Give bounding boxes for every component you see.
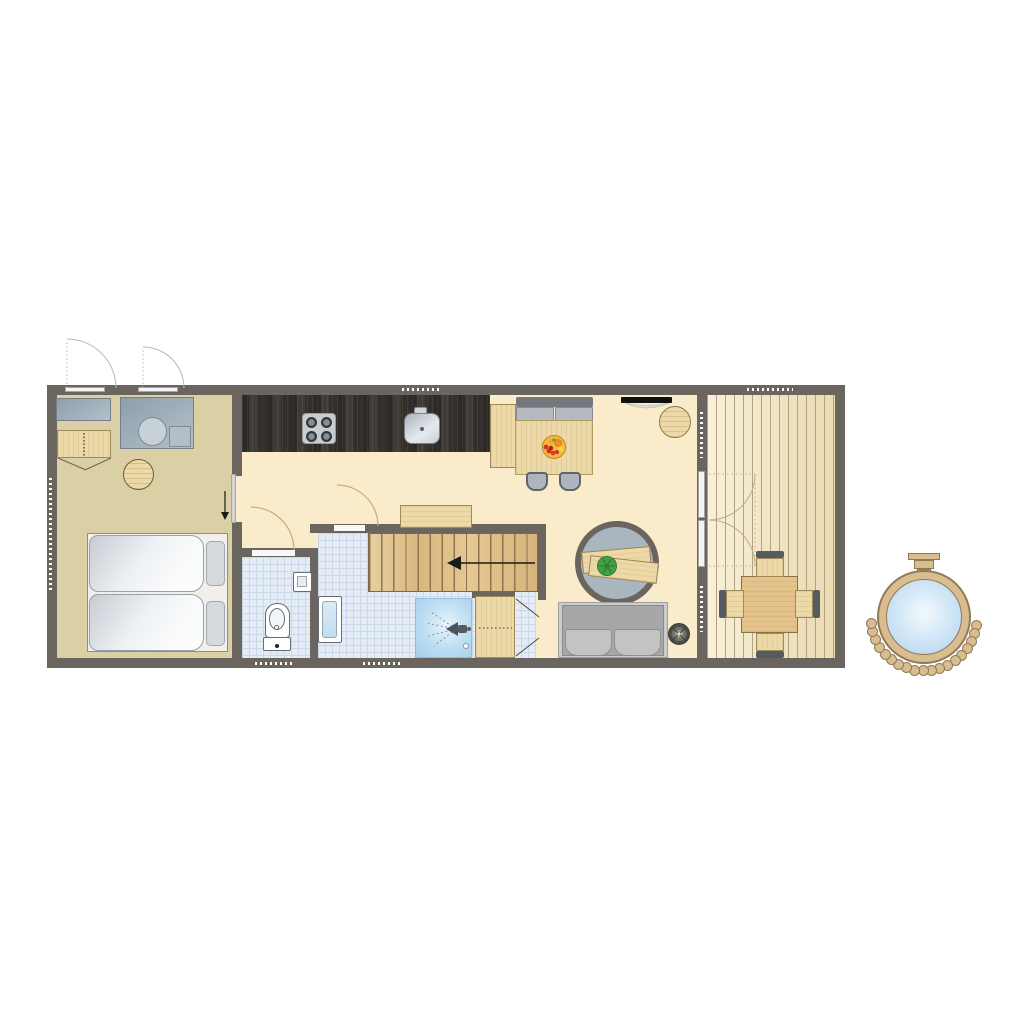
- toilet-cistern: [263, 637, 291, 651]
- hot-tub-water: [886, 579, 962, 655]
- hot-tub-stone: [971, 620, 982, 631]
- hot-tub-stone: [969, 628, 980, 639]
- hot-tub-stone: [909, 665, 920, 676]
- pouf: [123, 459, 154, 490]
- hot-tub-stone: [874, 642, 885, 653]
- dining-table: [515, 420, 593, 475]
- tv-icon: [621, 397, 672, 403]
- vent-grille: [402, 388, 442, 391]
- hob-burner: [321, 431, 332, 442]
- wall-bedroom-hall: [232, 395, 242, 658]
- vent-grille: [255, 662, 294, 665]
- hot-tub-stone: [966, 636, 977, 647]
- wall-bottom: [47, 658, 845, 668]
- wall-toilet-bath-divider: [310, 548, 318, 658]
- wall-right: [835, 385, 845, 668]
- garden-chair-seat: [726, 590, 744, 618]
- hot-tub-stone: [901, 662, 912, 673]
- hot-tub-stone: [926, 665, 937, 676]
- wardrobe: [57, 430, 111, 458]
- washbasin-bowl: [322, 601, 337, 638]
- bathroom-washbasin: [318, 596, 342, 643]
- staircase: [368, 533, 538, 592]
- bedroom-window-2: [138, 387, 178, 392]
- terrace-door-glass-2: [698, 520, 705, 567]
- hot-tub-stone: [934, 663, 945, 674]
- hot-tub-stone: [867, 626, 878, 637]
- cistern-button: [275, 644, 279, 648]
- vent-grille: [700, 412, 703, 458]
- sink-drain: [420, 427, 424, 431]
- bed-mattress-2: [89, 594, 204, 651]
- bed-pillow-2: [206, 601, 225, 646]
- garden-chair-seat: [756, 558, 784, 577]
- hand-basin-bowl: [297, 576, 307, 587]
- window-swing-arcs: [67, 339, 184, 388]
- hob-burner: [306, 417, 317, 428]
- hot-tub-stone: [942, 660, 953, 671]
- side-table: [659, 406, 691, 438]
- garden-chair-back: [719, 590, 726, 618]
- wall-bathroom-right: [538, 524, 546, 600]
- hot-tub-stone: [893, 659, 904, 670]
- hot-tub-stone: [950, 655, 961, 666]
- hot-tub-stone: [866, 618, 877, 629]
- hot-tub-heater-chimney: [908, 553, 940, 560]
- vanity-round-sink: [138, 417, 167, 446]
- garden-chair-seat: [795, 590, 813, 618]
- shower-tray: [415, 598, 472, 658]
- vanity-tray: [169, 426, 191, 447]
- garden-chair-back: [756, 551, 784, 558]
- bathroom-door-threshold: [334, 525, 365, 531]
- hot-tub-stone: [956, 650, 967, 661]
- vent-grille: [49, 478, 52, 590]
- garden-chair-back: [756, 651, 784, 658]
- vent-grille: [700, 586, 703, 632]
- hob-icon: [302, 413, 336, 444]
- kitchen-tall-cabinet: [490, 404, 516, 468]
- hot-tub-stone: [962, 643, 973, 654]
- hot-tub-heater-chimney: [914, 560, 934, 569]
- terrace-door-glass-1: [698, 471, 705, 518]
- hall-sideboard: [400, 505, 472, 528]
- dining-chair: [559, 472, 581, 491]
- garden-chair-seat: [756, 633, 784, 651]
- sofa-cushion: [614, 629, 661, 656]
- dresser: [56, 398, 111, 421]
- hot-tub-stone: [880, 649, 891, 660]
- vent-grille: [363, 662, 400, 665]
- toilet-door-threshold: [252, 550, 295, 556]
- vent-grille: [747, 388, 793, 391]
- toilet-drain: [274, 625, 279, 630]
- floor-plan-canvas: [0, 0, 1024, 1024]
- bed-pillow-1: [206, 541, 225, 586]
- garden-chair-back: [813, 590, 820, 618]
- kitchen-worktop: [242, 395, 490, 452]
- dining-bench-back: [516, 397, 593, 407]
- bedroom-sliding-door-panel: [231, 474, 236, 523]
- toilet-hand-basin: [293, 572, 312, 592]
- kitchen-sink: [404, 413, 440, 444]
- garden-table: [741, 576, 798, 633]
- bedroom-window-1: [65, 387, 105, 392]
- sofa-cushion: [565, 629, 612, 656]
- bathroom-closet: [475, 596, 515, 658]
- bed-mattress-1: [89, 535, 204, 592]
- hot-tub-stone: [886, 654, 897, 665]
- hot-tub-stone: [870, 634, 881, 645]
- hob-burner: [306, 431, 317, 442]
- dining-chair: [526, 472, 548, 491]
- hot-tub-stone: [918, 665, 929, 676]
- hob-burner: [321, 417, 332, 428]
